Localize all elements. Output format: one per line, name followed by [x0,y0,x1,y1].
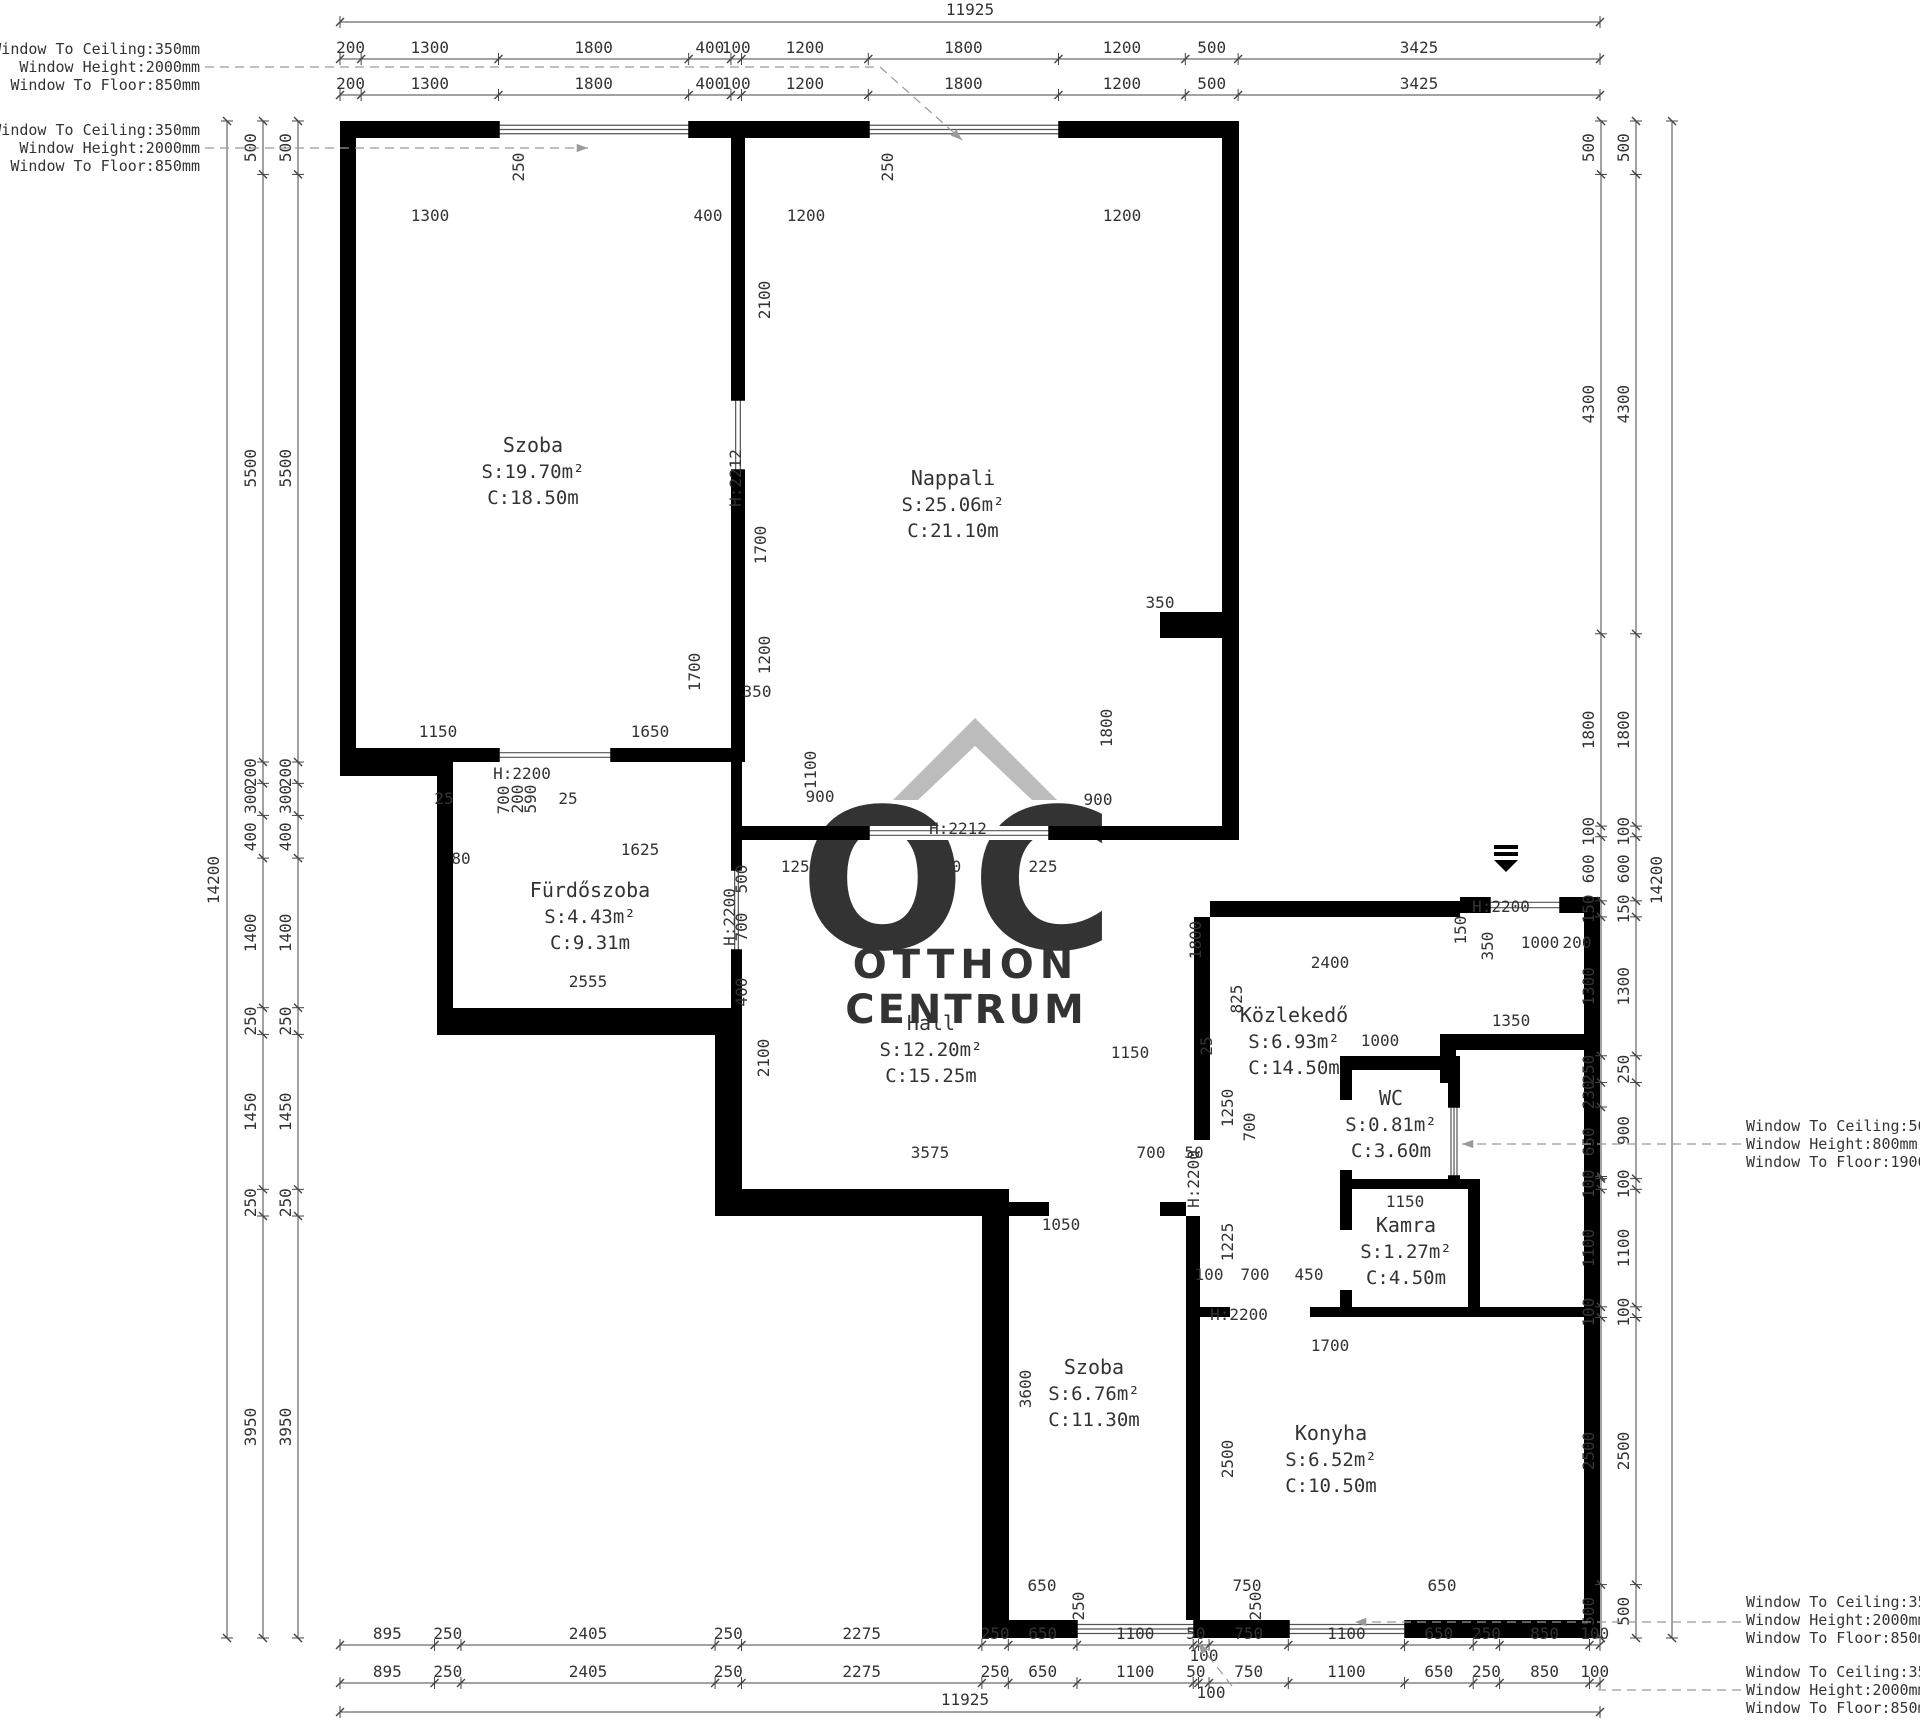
dim-label: 1300 [411,206,450,225]
dim-label: 250 [1579,1055,1598,1084]
dim-label: 400 [695,38,724,57]
dim-label: 500 [1197,74,1226,93]
room-area: S:19.70m² [482,461,585,483]
wall [1340,1056,1352,1100]
dim-label: 350 [1146,593,1175,612]
dim-label: 1100 [801,751,820,790]
wall [340,121,356,762]
dim-label: 1200 [755,636,774,675]
dim-label: 400 [694,206,723,225]
dim-label: 1700 [751,526,770,565]
dim-label: 100 [1195,1265,1224,1284]
wall [731,470,745,762]
dim-label: 1300 [411,74,450,93]
dim-label: 850 [1530,1624,1559,1643]
dim-label: 1200 [786,74,825,93]
dim-label: H:2200 [493,764,551,783]
room-perimeter: C:4.50m [1366,1267,1446,1289]
wall [1340,1189,1352,1230]
wall [715,1189,1009,1216]
watermark-line1: OTTHON [853,942,1079,988]
dim-label: 1100 [1116,1624,1155,1643]
dim-label: 100 [1197,1683,1226,1702]
dim-label: 1450 [241,1093,260,1132]
wall [1009,1202,1049,1216]
dim-label: 1800 [1614,711,1633,750]
dim-total-right: 14200 [1647,117,1678,1642]
room-perimeter: C:9.31m [550,932,630,954]
dim-label: 400 [695,74,724,93]
dim-label: 250 [241,1007,260,1036]
dim-label: 4300 [1579,385,1598,424]
dim-label: 500 [1197,38,1226,57]
wall [340,762,453,776]
dim-label: H:2212 [929,819,987,838]
room-perimeter: C:15.25m [885,1065,977,1087]
dim-chain-vertical: 5004300180010060015013002509001001100100… [1614,117,1642,1642]
dim-total-bottom: 11925 [336,1690,1604,1718]
room-area: S:6.93m² [1248,1031,1340,1053]
window-annotation-line: Window To Ceiling:500mm [1746,1117,1920,1135]
window-annotation-line: Window Height:2000mm [1746,1681,1920,1699]
entrance-arrow-icon [1494,845,1518,872]
window-annotation-line: Window To Ceiling:350mm [0,121,200,139]
wall [1448,1056,1460,1107]
dim-label: 600 [1579,854,1598,883]
wall [340,748,499,762]
dim-label: H:2200 [720,888,739,946]
dim-label: 50 [1186,1624,1205,1643]
dim-label: 2500 [1218,1440,1237,1479]
dim-label: 250 [714,1662,743,1681]
dim-label: 650 [1028,1662,1057,1681]
dim-label: 25 [434,789,453,808]
window-annotation-line: Window To Floor:850mm [1746,1699,1920,1717]
dim-label: 650 [1428,1576,1457,1595]
dim-label: 2275 [842,1662,881,1681]
dim-label: H:2200 [1184,1150,1203,1208]
dim-label: 200 [1563,933,1592,952]
room-perimeter: C:3.60m [1351,1140,1431,1162]
dim-label: 650 [1424,1624,1453,1643]
dim-label: 1200 [787,206,826,225]
wall [1340,1179,1480,1189]
dim-label: 1650 [631,722,670,741]
window-annotation: Window To Ceiling:350mmWindow Height:200… [1746,1663,1920,1717]
dim-label: 1200 [786,38,825,57]
dim-label: 150 [1614,894,1633,923]
window-annotation-line: Window To Ceiling:350mm [1746,1663,1920,1681]
dim-label: 1800 [1097,709,1116,748]
dim-label: 80 [451,849,470,868]
dim-label: 590 [521,785,540,814]
wall [731,138,745,400]
dim-label: 1100 [1579,1229,1598,1268]
dim-label: 600 [1614,854,1633,883]
dim-label: 5500 [276,449,295,488]
dim-label: 230 [1579,1080,1598,1109]
floor-plan-page: OCOTTHONCENTRUM2001300180040010012001800… [0,0,1920,1727]
dim-label: 1200 [1103,74,1142,93]
dim-label: 200 [336,38,365,57]
dim-label: 1100 [1327,1624,1366,1643]
room-name: Szoba [503,433,563,457]
dim-label: 850 [1530,1662,1559,1681]
dim-label: 1250 [1218,1089,1237,1128]
dim-label: 100 [1579,1298,1598,1327]
dim-label: 100 [722,74,751,93]
wall [1340,1056,1460,1070]
wall [1049,826,1239,840]
room-name: Szoba [1064,1355,1124,1379]
window-annotation-line: Window Height:2000mm [19,58,200,76]
dim-label: 4300 [1614,385,1633,424]
dim-label: 1625 [621,840,660,859]
room-area: S:25.06m² [902,494,1005,516]
window-annotation-line: Window Height:800mm [1746,1135,1918,1153]
dim-label: 1250 [781,857,820,876]
dim-label: 2405 [569,1662,608,1681]
dim-label: 1000 [1361,1031,1400,1050]
dim-label: 100 [722,38,751,57]
wall [437,776,453,1035]
wall [1059,121,1239,138]
dim-label: 2400 [1311,953,1350,972]
dim-label: 100 [1614,1298,1633,1327]
wall [340,121,499,138]
window-annotation-line: Window To Floor:850mm [10,157,200,175]
dim-label: 250 [433,1624,462,1643]
wall [982,1216,1009,1620]
dim-label: 500 [1579,133,1598,162]
wall [689,121,869,138]
dim-label: 5500 [241,449,260,488]
dim-label: 750 [1234,1624,1263,1643]
room-name: Kamra [1376,1213,1436,1237]
dim-label: 200 [241,758,260,787]
dim-label: 3950 [276,1408,295,1447]
dim-label: 350 [743,682,772,701]
dim-label: 3575 [911,1143,950,1162]
window-annotation: Window To Ceiling:350mmWindow Height:200… [0,121,200,175]
wall [437,1008,742,1035]
window-annotation-line: Window To Ceiling:350mm [1746,1593,1920,1611]
dim-label: 500 [1614,133,1633,162]
dim-label: 1800 [944,38,983,57]
dim-label: 14200 [1647,856,1666,904]
dim-label: 11925 [941,1690,989,1709]
dim-label: 200 [336,74,365,93]
dim-label: 2500 [1614,1432,1633,1471]
dim-label: 1700 [1311,1336,1350,1355]
dim-label: 1800 [1186,921,1205,960]
wall [611,748,742,762]
dim-label: H:2200 [1472,897,1530,916]
dim-label: 2100 [754,1039,773,1078]
wall [715,1035,742,1216]
dim-label: 3600 [1016,1370,1035,1409]
floor-plan-canvas: OCOTTHONCENTRUM2001300180040010012001800… [0,0,1920,1727]
room-perimeter: C:18.50m [487,487,579,509]
dim-chain-horizontal: 200130018004001001200180012005003425 [336,38,1604,65]
dim-label: 250 [1472,1624,1501,1643]
dim-label: 250 [878,153,897,182]
dim-label: 150 [1579,894,1598,923]
room-name: WC [1379,1086,1403,1110]
dim-label: 2275 [842,1624,881,1643]
window-annotation-line: Window To Ceiling:350mm [0,40,200,58]
dim-label: 250 [1069,1592,1088,1621]
dim-label: 250 [241,1188,260,1217]
window-annotation-line: Window Height:2000mm [19,139,200,157]
dim-label: 650 [1028,1576,1057,1595]
room-perimeter: C:14.50m [1248,1057,1340,1079]
dim-label: 700 [1240,1113,1259,1142]
dim-label: 2405 [569,1624,608,1643]
dim-label: 1100 [1614,1229,1633,1268]
wall [1222,138,1239,830]
dim-label: 650 [1579,1127,1598,1156]
room-area: S:6.76m² [1048,1383,1140,1405]
wall [742,826,869,840]
window-annotation: Window To Ceiling:500mmWindow Height:800… [1746,1117,1920,1171]
wall [731,762,742,870]
dim-label: 1800 [1579,711,1598,750]
dim-label: 1000 [1521,933,1560,952]
dim-label: 750 [1234,1662,1263,1681]
dim-label: 250 [981,1624,1010,1643]
dim-label: 1700 [685,653,704,692]
dim-label: 1300 [1579,967,1598,1006]
dim-label: 3425 [1400,38,1439,57]
dim-label: 14200 [204,856,223,904]
leader-arrow-icon [577,144,588,152]
dim-label: 1800 [574,38,613,57]
dim-label: 1150 [1111,1043,1150,1062]
wall [1210,901,1460,917]
dim-label: 1800 [574,74,613,93]
dim-label: 3950 [241,1408,260,1447]
dim-label: 895 [373,1662,402,1681]
dim-label: 900 [1614,1116,1633,1145]
room-name: Nappali [911,466,995,490]
dim-chain-vertical: 5005500200300400140025014502503950 [276,117,304,1642]
room-name: Fürdőszoba [530,878,650,902]
dim-label: 1350 [1492,1011,1531,1030]
dim-label: 225 [1029,857,1058,876]
room-area: S:0.81m² [1345,1114,1437,1136]
wall [1160,1202,1186,1216]
dim-label: 700 [1137,1143,1166,1162]
dim-label: 100 [1580,1624,1609,1643]
room-perimeter: C:11.30m [1048,1409,1140,1431]
window-annotation-line: Window Height:2000mm [1746,1611,1920,1629]
dim-label: 100 [1614,817,1633,846]
dim-label: 2555 [569,972,608,991]
dim-chain-horizontal: 200130018004001001200180012005003425 [336,74,1604,101]
dim-label: 250 [1614,1055,1633,1084]
room-area: S:6.52m² [1285,1449,1377,1471]
dim-label: 250 [276,1007,295,1036]
room-name: Hall [907,1011,955,1035]
room-perimeter: C:21.10m [907,520,999,542]
dim-chain-vertical: 5005500200300400140025014502503950 [241,117,269,1642]
room-area: S:12.20m² [880,1039,983,1061]
dim-label: 2500 [1579,1432,1598,1471]
dim-label: 1700 [923,857,962,876]
wall [1440,1034,1584,1050]
dim-label: 400 [276,822,295,851]
dim-label: 1150 [419,722,458,741]
dim-label: 250 [981,1662,1010,1681]
wall [1468,1189,1480,1317]
room-perimeter: C:10.50m [1285,1475,1377,1497]
dim-label: 900 [806,787,835,806]
dim-label: 100 [1579,1170,1598,1199]
dim-label: 1100 [1116,1662,1155,1681]
dim-label: 650 [1028,1624,1057,1643]
dim-label: 1400 [241,914,260,953]
dim-label: 11925 [946,0,994,19]
dim-label: 250 [509,153,528,182]
dim-label: 100 [1614,1170,1633,1199]
wall [1160,612,1222,638]
dim-label: 1050 [1042,1215,1081,1234]
dim-label: 1800 [944,74,983,93]
dim-label: 650 [1424,1662,1453,1681]
dim-label: H:2200 [1210,1305,1268,1324]
dim-label: 700 [1241,1265,1270,1284]
room-area: S:1.27m² [1360,1241,1452,1263]
dim-label: 900 [1084,790,1113,809]
dim-label: 25 [1197,1036,1216,1055]
room-name: Közlekedő [1240,1003,1348,1027]
dim-label: 1300 [411,38,450,57]
dim-total-left: 14200 [204,117,233,1642]
wall [1310,1307,1600,1317]
dim-label: 400 [241,822,260,851]
window-annotation-line: Window To Floor:850mm [10,76,200,94]
dim-label: 1225 [1218,1223,1237,1262]
dim-label: 3425 [1400,74,1439,93]
window-annotation-line: Window To Floor:1900mm [1746,1153,1920,1171]
dim-total-top: 11925 [336,0,1604,28]
dim-label: 100 [1580,1662,1609,1681]
window-opening [499,748,611,762]
watermark-line2: CENTRUM [845,987,1087,1033]
dim-label: 250 [433,1662,462,1681]
dim-chain-horizontal: 8952502405250227525065011005075011006502… [336,1662,1609,1689]
dim-label: 250 [714,1624,743,1643]
room-name: Konyha [1295,1421,1367,1445]
dim-label: 250 [1246,1592,1265,1621]
dim-label: 1100 [1327,1662,1366,1681]
leader-arrow-icon [1462,1140,1473,1148]
leader-line [205,144,588,152]
dim-label: 2100 [755,281,774,320]
dim-label: 300 [241,785,260,814]
dim-label: 450 [1295,1265,1324,1284]
dim-label: 150 [1451,916,1470,945]
dim-label: 25 [558,789,577,808]
dim-label: 1200 [1103,38,1142,57]
dim-label: 200 [276,758,295,787]
window-annotation: Window To Ceiling:350mmWindow Height:200… [1746,1593,1920,1647]
dim-label: 1450 [276,1093,295,1132]
window-annotation: Window To Ceiling:350mmWindow Height:200… [0,40,200,94]
dim-label: 300 [276,785,295,814]
dim-label: 895 [373,1624,402,1643]
dim-label: 1300 [1614,967,1633,1006]
dim-label: 250 [276,1188,295,1217]
dim-label: H:2212 [726,449,745,507]
dim-label: 100 [1579,817,1598,846]
dim-label: 1150 [1386,1192,1425,1211]
dim-label: 1200 [1103,206,1142,225]
window-annotation-line: Window To Floor:850mm [1746,1629,1920,1647]
room-area: S:4.43m² [544,906,636,928]
dim-label: 350 [1478,932,1497,961]
dim-label: 1400 [276,914,295,953]
dim-label: 250 [1472,1662,1501,1681]
dim-label: 400 [732,978,751,1007]
